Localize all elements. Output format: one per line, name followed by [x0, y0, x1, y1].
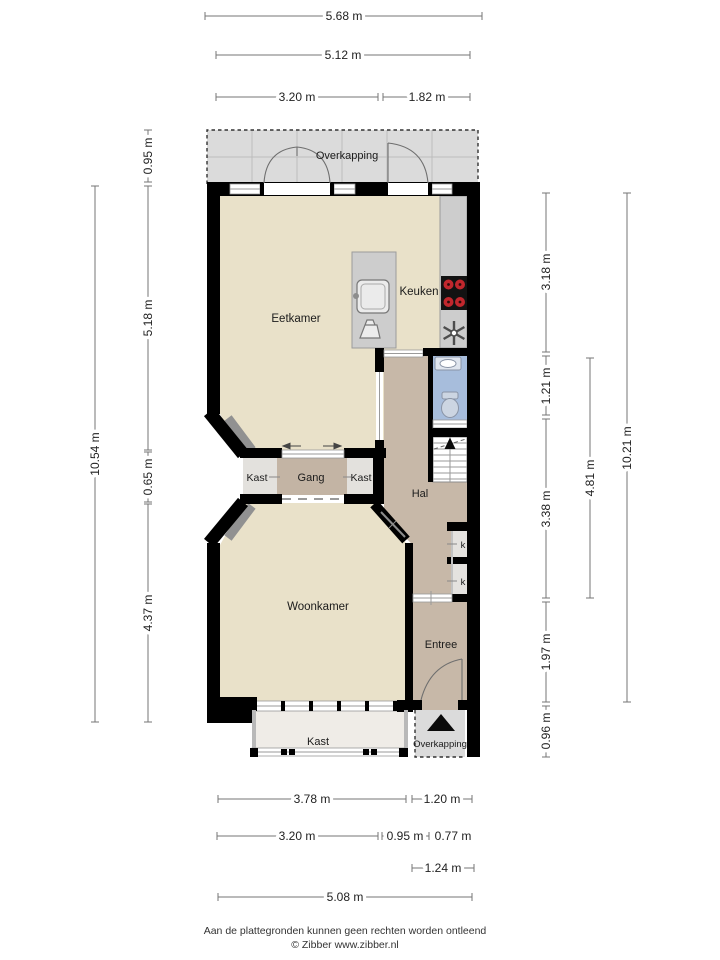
dimension: 3.18 m	[539, 193, 553, 352]
stairs	[433, 437, 467, 482]
toilet-icon	[442, 392, 459, 418]
dimension: 1.82 m	[383, 90, 470, 104]
dimension: 0.95 m	[141, 130, 155, 182]
room-label: Kast	[307, 736, 329, 748]
dimension: 5.68 m	[205, 9, 482, 23]
dimension: 1.20 m	[412, 792, 472, 806]
room-label: Overkapping	[413, 739, 467, 750]
dimension: 0.77 m	[433, 829, 472, 843]
room-label: Kast	[246, 472, 267, 484]
dimension-label: 0.65 m	[141, 459, 155, 496]
dimension-label: 10.21 m	[620, 426, 634, 469]
dimension-label: 0.95 m	[141, 138, 155, 175]
room-label: Eetkamer	[271, 313, 320, 325]
room-label: k	[461, 540, 466, 551]
dimension: 5.18 m	[141, 186, 155, 450]
dimension-label: 3.20 m	[279, 829, 316, 843]
bathroom-sink-icon	[435, 357, 461, 370]
dimension-label: 0.77 m	[435, 829, 472, 843]
dimension: 0.95 m	[382, 829, 429, 843]
dimension: 1.21 m	[539, 356, 553, 415]
dimension: 10.21 m	[620, 193, 634, 702]
room-label: Overkapping	[316, 150, 378, 162]
room-label: Keuken	[399, 286, 438, 298]
dimension-label: 1.82 m	[409, 90, 446, 104]
dimension-label: 5.18 m	[141, 300, 155, 337]
dimension: 1.24 m	[412, 861, 474, 875]
dimension-label: 1.24 m	[425, 861, 462, 875]
dimension-label: 3.18 m	[539, 254, 553, 291]
dimension-label: 0.95 m	[387, 829, 424, 843]
dimension: 3.38 m	[539, 419, 553, 598]
dimension-label: 5.08 m	[327, 890, 364, 904]
room-label: Gang	[298, 472, 325, 484]
dimension-label: 3.38 m	[539, 491, 553, 528]
dimension: 3.20 m	[216, 90, 378, 104]
dimension: 4.37 m	[141, 504, 155, 722]
dimension: 0.65 m	[141, 452, 155, 502]
dimension-label: 1.97 m	[539, 634, 553, 671]
dimension-label: 5.68 m	[326, 9, 363, 23]
dimension-label: 4.37 m	[141, 595, 155, 632]
dimension-label: 10.54 m	[88, 432, 102, 475]
dimension: 5.12 m	[216, 48, 470, 62]
sink-icon	[353, 280, 389, 313]
room-label: Entree	[425, 639, 457, 651]
cooktop-icon	[441, 276, 467, 310]
dimension-label: 5.12 m	[325, 48, 362, 62]
floorplan-canvas: 5.68 m5.12 m3.20 m1.82 m0.95 m5.18 m0.65…	[0, 0, 720, 960]
dimension: 3.78 m	[218, 792, 406, 806]
dimension-label: 1.20 m	[424, 792, 461, 806]
dimension-label: 0.96 m	[539, 713, 553, 750]
room-label: Hal	[412, 488, 429, 500]
dimension: 1.97 m	[539, 602, 553, 702]
dimension-label: 3.20 m	[279, 90, 316, 104]
dimension: 4.81 m	[583, 358, 597, 598]
dimension: 5.08 m	[218, 890, 472, 904]
footer-disclaimer: Aan de plattegronden kunnen geen rechten…	[204, 925, 487, 937]
footer-credit: © Zibber www.zibber.nl	[291, 939, 399, 951]
dimension: 3.20 m	[217, 829, 378, 843]
room-label: Woonkamer	[287, 601, 349, 613]
dimension: 10.54 m	[88, 186, 102, 722]
dimension-label: 3.78 m	[294, 792, 331, 806]
room-label: k	[461, 577, 466, 588]
door-opening	[388, 183, 428, 195]
dimension-label: 1.21 m	[539, 368, 553, 405]
dimension-label: 4.81 m	[583, 460, 597, 497]
dimension: 0.96 m	[539, 706, 553, 757]
room-label: Kast	[350, 472, 371, 484]
door-opening	[264, 183, 330, 195]
